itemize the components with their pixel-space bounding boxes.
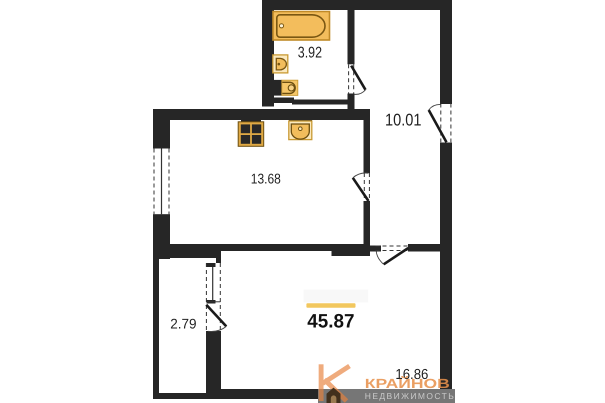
- svg-text:45.87: 45.87: [307, 311, 354, 333]
- svg-text:2.79: 2.79: [170, 316, 197, 332]
- svg-text:3.92: 3.92: [298, 45, 322, 62]
- svg-text:КРАЙНОВ: КРАЙНОВ: [365, 376, 450, 391]
- svg-text:10.01: 10.01: [385, 111, 422, 130]
- svg-text:13.68: 13.68: [251, 171, 281, 187]
